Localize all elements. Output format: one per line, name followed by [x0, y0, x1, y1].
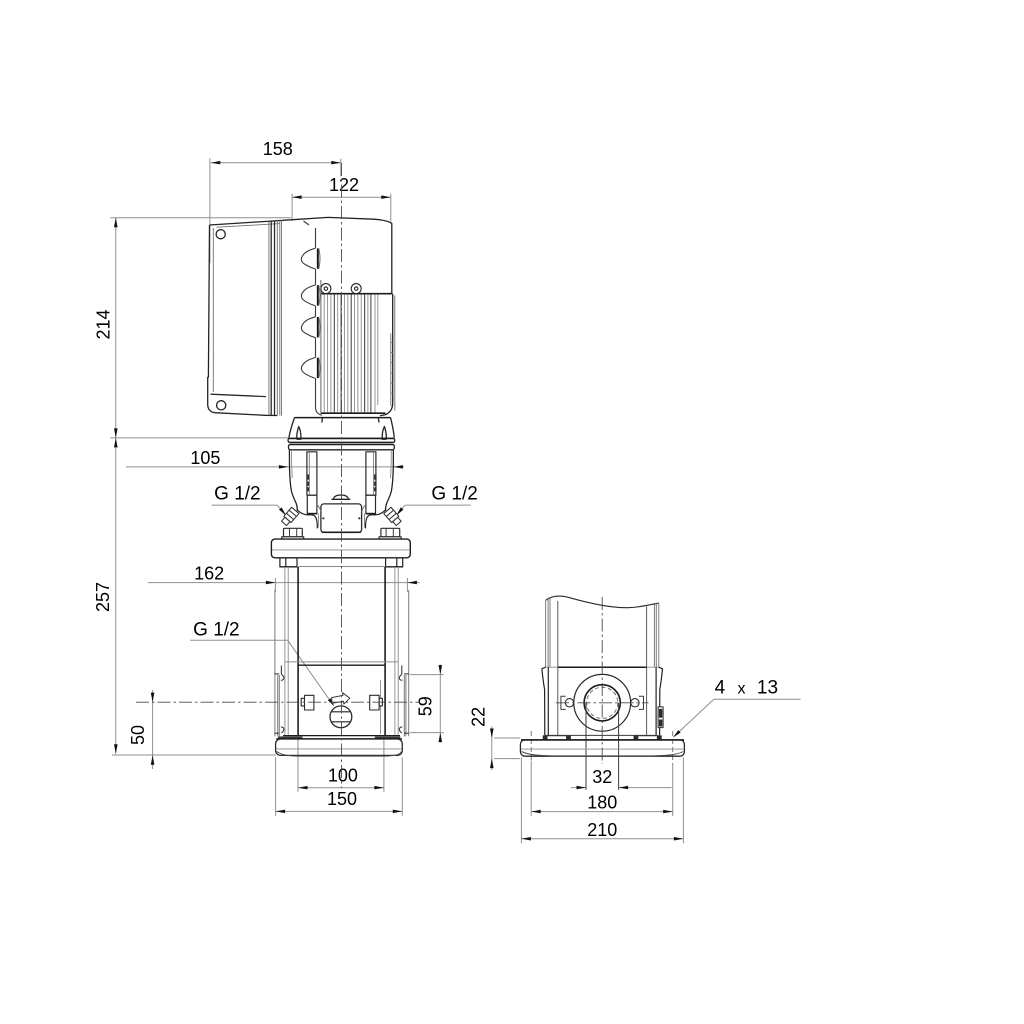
svg-text:x: x	[738, 680, 746, 697]
svg-text:4: 4	[715, 677, 726, 698]
svg-text:32: 32	[592, 767, 612, 787]
svg-text:13: 13	[757, 677, 778, 698]
svg-text:G 1/2: G 1/2	[193, 620, 239, 641]
svg-text:G 1/2: G 1/2	[214, 483, 260, 504]
svg-text:180: 180	[587, 793, 617, 813]
svg-text:G 1/2: G 1/2	[431, 483, 477, 504]
svg-text:162: 162	[194, 564, 224, 584]
svg-text:257: 257	[93, 582, 113, 612]
svg-text:158: 158	[263, 139, 293, 159]
svg-text:122: 122	[329, 175, 359, 195]
svg-text:150: 150	[327, 789, 357, 809]
svg-text:22: 22	[468, 707, 488, 727]
svg-text:210: 210	[587, 820, 617, 840]
svg-text:105: 105	[190, 448, 220, 468]
svg-text:214: 214	[93, 309, 113, 339]
svg-text:100: 100	[328, 766, 358, 786]
svg-text:59: 59	[416, 696, 436, 716]
svg-text:50: 50	[128, 725, 148, 745]
